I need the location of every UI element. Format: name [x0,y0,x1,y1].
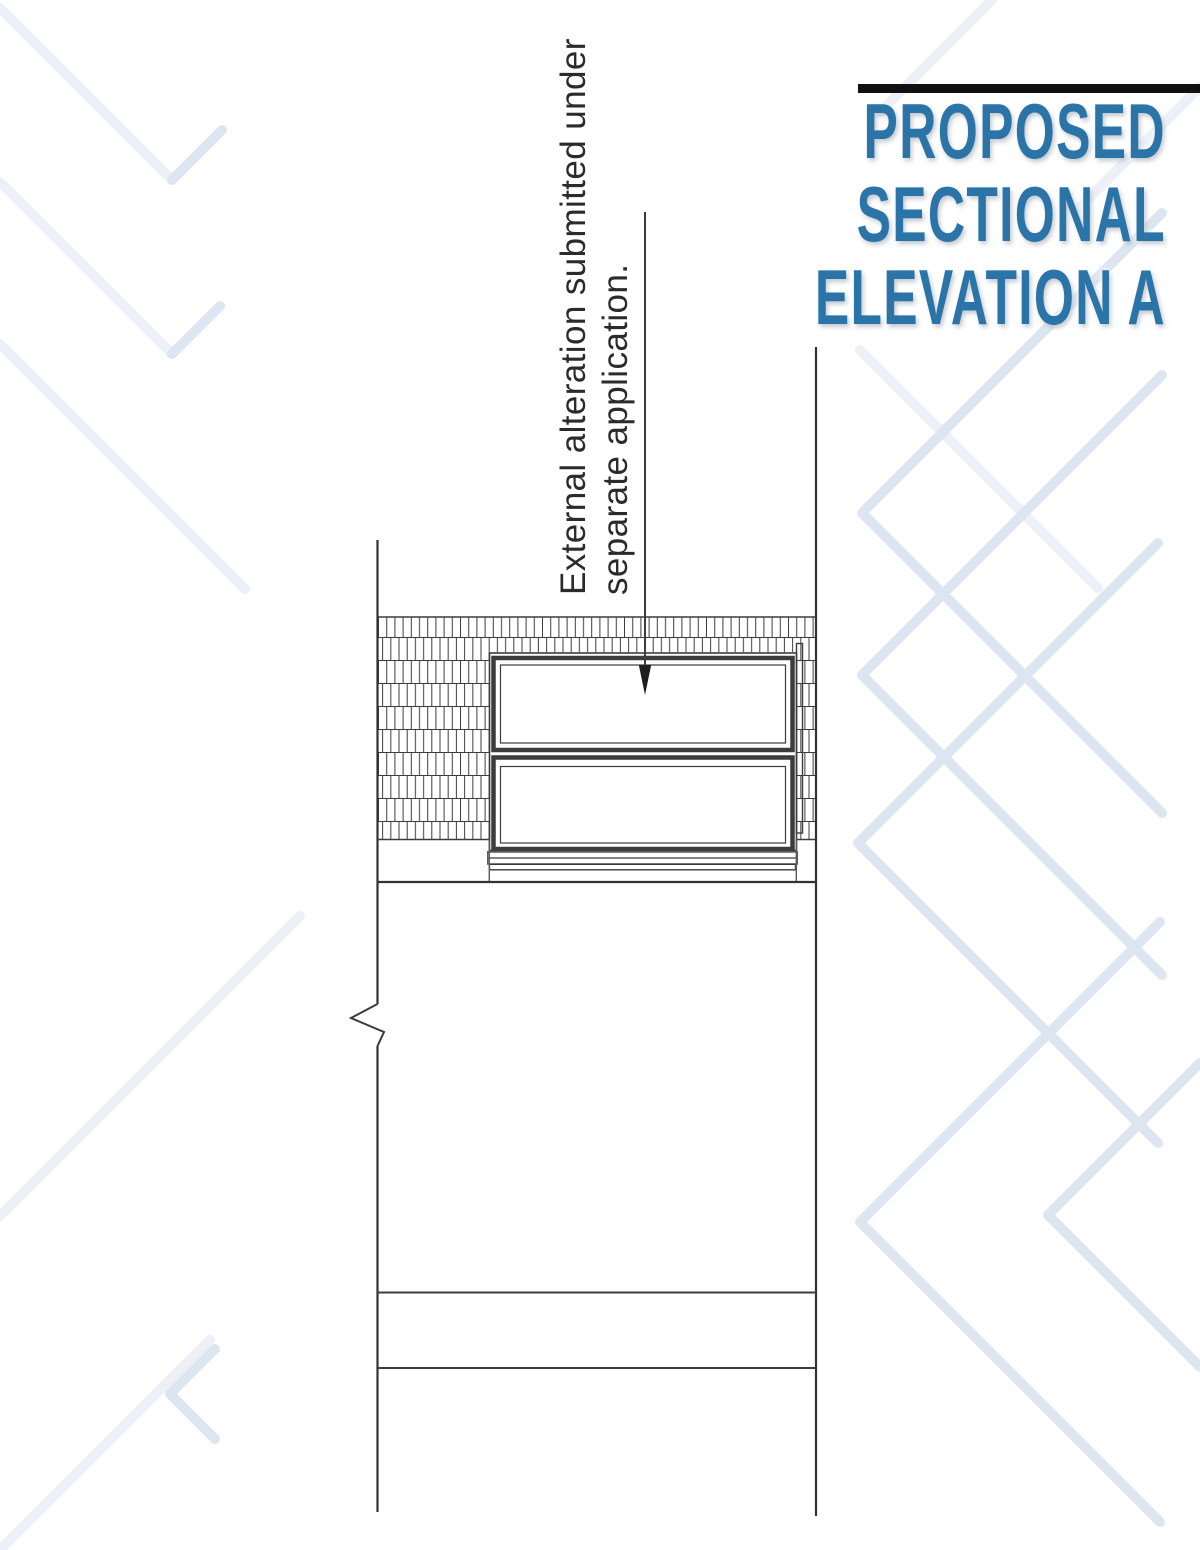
title-line-1: PROPOSED [815,90,1166,173]
annotation-note: External alteration submitted under sepa… [553,0,641,595]
title-line-3: ELEVATION A [815,256,1166,339]
annotation-line-2: separate application. [595,0,637,595]
page-title: PROPOSED SECTIONAL ELEVATION A [815,90,1166,339]
title-line-2: SECTIONAL [815,173,1166,256]
annotation-line-1: External alteration submitted under [553,0,595,595]
drawing-sheet: External alteration submitted under sepa… [0,0,1200,1550]
